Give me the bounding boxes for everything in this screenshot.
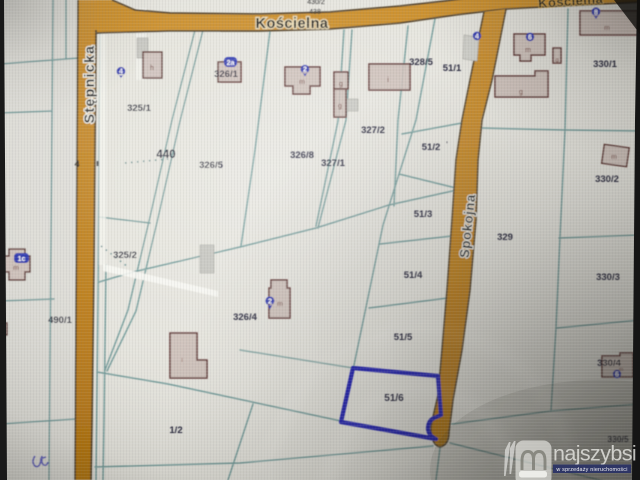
svg-text:w sprzedaży nieruchomości: w sprzedaży nieruchomości <box>555 467 627 473</box>
svg-text:najszybsi: najszybsi <box>553 442 636 466</box>
